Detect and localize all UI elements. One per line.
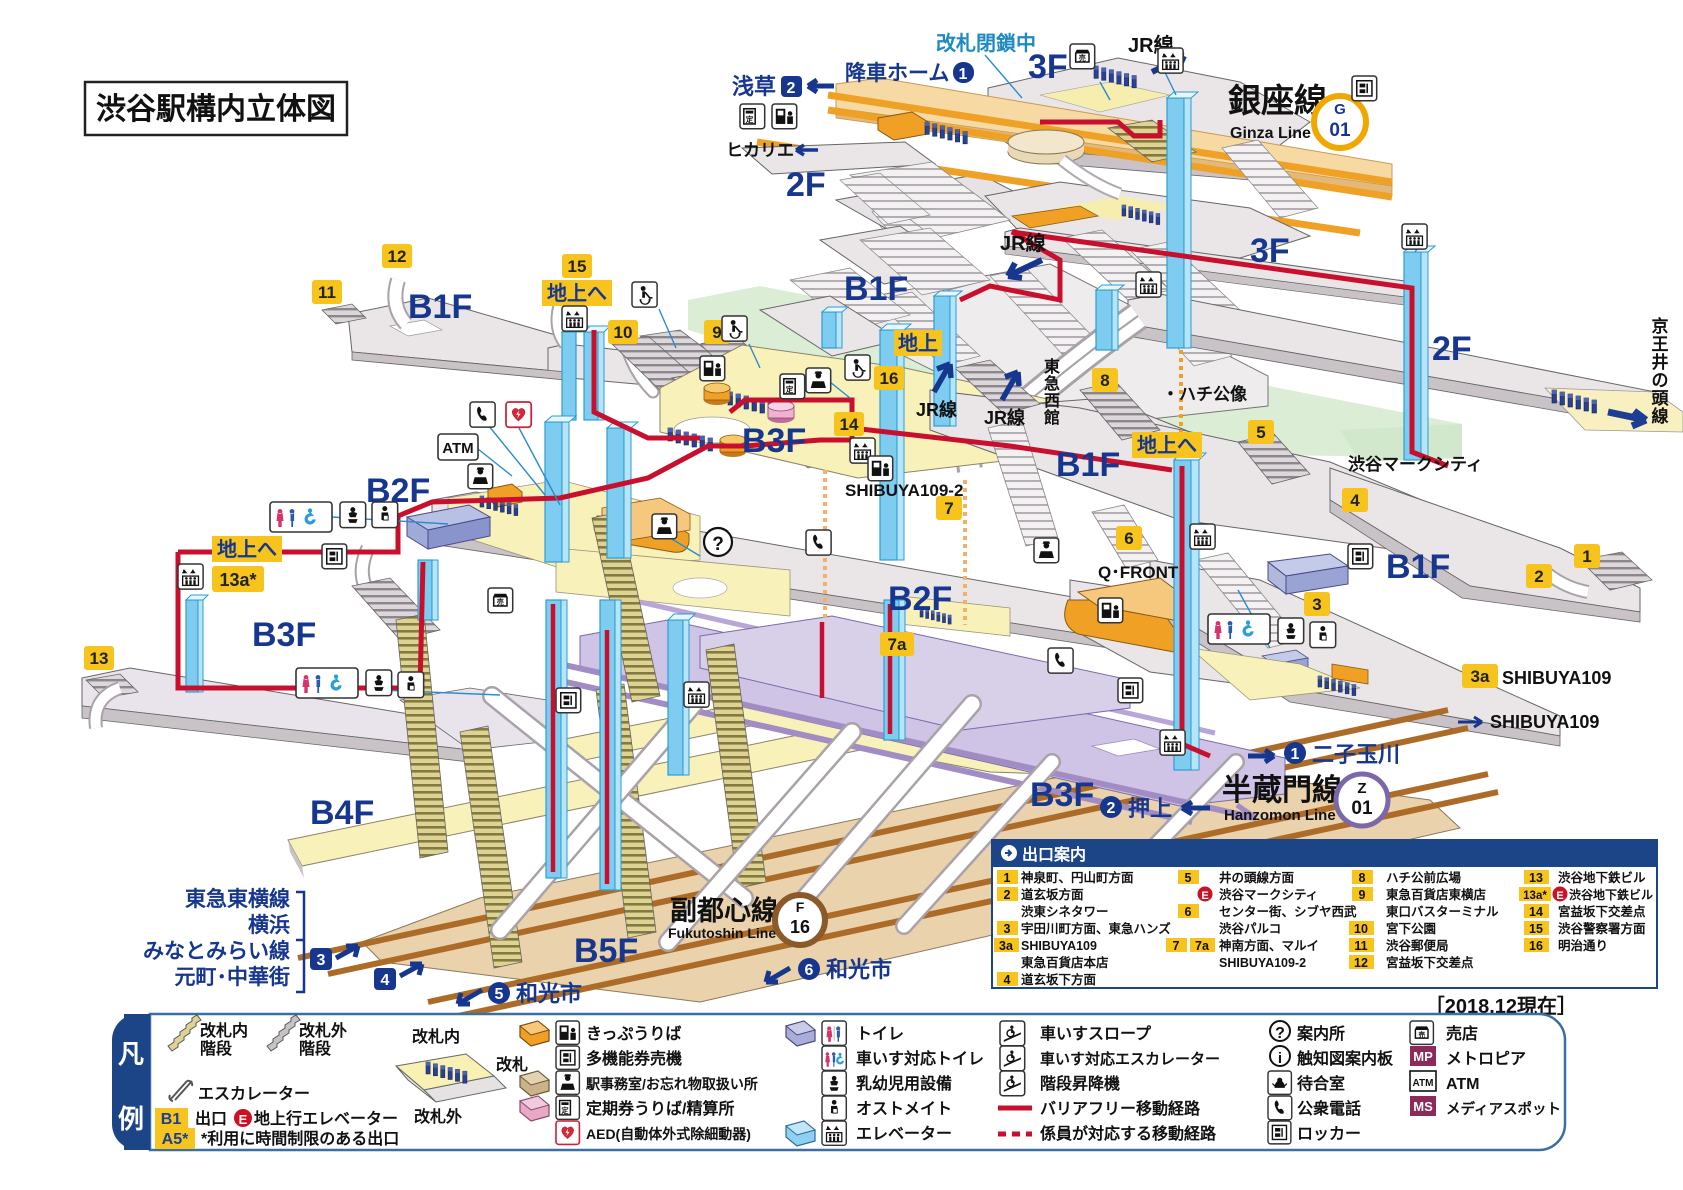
svg-text:i: i: [1278, 1050, 1282, 1067]
svg-text:01: 01: [1351, 798, 1373, 819]
svg-text:トイレ: トイレ: [856, 1026, 904, 1043]
svg-text:3: 3: [317, 952, 326, 969]
svg-text:メディアスポット: メディアスポット: [1446, 1100, 1561, 1118]
svg-text:?: ?: [1275, 1025, 1285, 1042]
svg-text:出口案内: 出口案内: [1022, 845, 1086, 864]
svg-text:多機能券売機: 多機能券売機: [586, 1049, 682, 1068]
svg-text:2: 2: [1107, 800, 1116, 817]
svg-text:触知図案内板: 触知図案内板: [1296, 1049, 1394, 1068]
svg-text:13: 13: [90, 649, 109, 668]
svg-text:改札閉鎖中: 改札閉鎖中: [936, 31, 1036, 55]
svg-text:東急百貨店東横店: 東急百貨店東横店: [1386, 887, 1487, 902]
svg-text:16: 16: [790, 917, 810, 937]
svg-text:ATM: ATM: [442, 440, 473, 457]
svg-text:車いす対応エスカレーター: 車いす対応エスカレーター: [1040, 1050, 1220, 1068]
svg-text:地上へ: 地上へ: [217, 538, 277, 561]
svg-text:線: 線: [1652, 406, 1669, 426]
svg-text:地上へ: 地上へ: [547, 282, 607, 305]
svg-text:*利用に時間制限のある出口: *利用に時間制限のある出口: [201, 1129, 399, 1148]
svg-text:宮益坂下交差点: 宮益坂下交差点: [1558, 904, 1646, 919]
svg-text:5: 5: [1185, 871, 1192, 885]
svg-text:京: 京: [1652, 316, 1669, 336]
svg-text:きっぷうりば: きっぷうりば: [586, 1025, 681, 1043]
svg-text:3: 3: [1312, 595, 1321, 614]
svg-text:12: 12: [388, 247, 407, 266]
svg-text:和光市: 和光市: [516, 981, 582, 1006]
svg-text:井の頭線方面: 井の頭線方面: [1219, 870, 1295, 885]
svg-text:銀座線: 銀座線: [1228, 82, 1327, 119]
svg-text:Ginza Line: Ginza Line: [1230, 125, 1311, 142]
svg-text:駅事務室/お忘れ物取扱い所: 駅事務室/お忘れ物取扱い所: [586, 1076, 758, 1092]
svg-text:A5*: A5*: [162, 1131, 189, 1148]
svg-text:6: 6: [805, 962, 814, 979]
svg-text:E: E: [239, 1112, 248, 1127]
svg-text:バリアフリー移動経路: バリアフリー移動経路: [1040, 1099, 1201, 1118]
svg-text:E: E: [1201, 890, 1208, 902]
svg-text:出口: 出口: [195, 1109, 227, 1128]
svg-text:明治通り: 明治通り: [1558, 938, 1608, 953]
svg-text:宇田川町方面、東急ハンズ: 宇田川町方面、東急ハンズ: [1021, 921, 1171, 936]
svg-text:ロッカー: ロッカー: [1297, 1125, 1361, 1143]
svg-text:道玄坂下方面: 道玄坂下方面: [1021, 972, 1097, 987]
svg-text:14: 14: [840, 415, 859, 434]
svg-text:ヒカリエ: ヒカリエ: [726, 141, 794, 160]
svg-text:B2F: B2F: [888, 580, 952, 618]
svg-text:階段: 階段: [299, 1039, 332, 1058]
svg-text:15: 15: [568, 257, 587, 276]
svg-text:押上: 押上: [1128, 796, 1172, 821]
svg-text:定期券うりば/精算所: 定期券うりば/精算所: [585, 1099, 734, 1118]
svg-text:11: 11: [1354, 939, 1367, 953]
svg-text:JR線: JR線: [984, 407, 1025, 428]
svg-text:・ハチ公像: ・ハチ公像: [1162, 385, 1248, 404]
svg-text:1: 1: [1004, 871, 1011, 885]
svg-text:地上: 地上: [898, 332, 938, 355]
svg-text:公衆電話: 公衆電話: [1297, 1099, 1361, 1118]
svg-text:SHIBUYA109-2: SHIBUYA109-2: [1219, 956, 1306, 970]
svg-text:9: 9: [712, 323, 721, 342]
svg-text:Hanzomon Line: Hanzomon Line: [1224, 807, 1336, 824]
svg-text:01: 01: [1329, 120, 1351, 141]
svg-text:1: 1: [1291, 746, 1300, 763]
svg-text:二子玉川: 二子玉川: [1312, 742, 1400, 767]
svg-text:B1F: B1F: [844, 270, 908, 308]
svg-text:15: 15: [1529, 922, 1543, 936]
svg-text:階段昇降機: 階段昇降機: [1040, 1074, 1120, 1093]
svg-text:13a*: 13a*: [1523, 890, 1547, 902]
svg-text:3a: 3a: [1471, 667, 1490, 686]
svg-text:7a: 7a: [1195, 939, 1210, 953]
svg-text:案内所: 案内所: [1296, 1024, 1345, 1043]
svg-text:改札内: 改札内: [412, 1027, 460, 1046]
svg-text:B1F: B1F: [1056, 446, 1120, 484]
svg-text:例: 例: [118, 1104, 144, 1134]
svg-text:1: 1: [1582, 547, 1591, 566]
svg-text:係員が対応する移動経路: 係員が対応する移動経路: [1040, 1124, 1217, 1143]
svg-text:F: F: [796, 899, 805, 915]
svg-text:乳幼児用設備: 乳幼児用設備: [856, 1074, 952, 1093]
svg-text:神泉町、円山町方面: 神泉町、円山町方面: [1021, 870, 1134, 885]
svg-text:車いす対応トイレ: 車いす対応トイレ: [856, 1049, 984, 1068]
svg-text:E: E: [1556, 890, 1563, 902]
svg-text:7: 7: [944, 499, 953, 518]
svg-text:SHIBUYA109: SHIBUYA109: [1021, 939, 1097, 953]
svg-text:7: 7: [1173, 939, 1180, 953]
svg-text:和光市: 和光市: [826, 957, 892, 982]
svg-text:SHIBUYA109: SHIBUYA109: [1502, 668, 1611, 688]
svg-text:5: 5: [1256, 423, 1265, 442]
svg-text:渋東シネタワー: 渋東シネタワー: [1021, 904, 1109, 919]
svg-text:エレベーター: エレベーター: [856, 1125, 952, 1143]
svg-text:副都心線: 副都心線: [670, 895, 778, 926]
svg-text:降車ホーム: 降車ホーム: [845, 61, 949, 85]
svg-text:道玄坂方面: 道玄坂方面: [1021, 887, 1084, 902]
svg-text:13: 13: [1529, 871, 1543, 885]
svg-text:12: 12: [1354, 956, 1368, 970]
svg-text:?: ?: [712, 534, 724, 555]
svg-text:7a: 7a: [888, 635, 907, 654]
svg-text:10: 10: [614, 323, 633, 342]
svg-text:半蔵門線: 半蔵門線: [1222, 773, 1342, 807]
svg-text:ハチ公前広場: ハチ公前広場: [1386, 870, 1462, 885]
svg-text:階段: 階段: [200, 1039, 233, 1058]
svg-text:B1: B1: [161, 1111, 182, 1128]
svg-text:3F: 3F: [1250, 232, 1290, 270]
svg-text:メトロピア: メトロピア: [1446, 1050, 1526, 1068]
svg-text:JR線: JR線: [916, 399, 957, 420]
svg-text:王: 王: [1652, 335, 1669, 354]
svg-text:凡: 凡: [118, 1039, 144, 1069]
svg-text:16: 16: [880, 369, 899, 388]
svg-text:B4F: B4F: [310, 794, 374, 832]
svg-text:元町･中華街: 元町･中華街: [175, 965, 291, 989]
svg-text:西: 西: [1044, 392, 1060, 410]
svg-text:1: 1: [959, 66, 968, 83]
svg-text:B5F: B5F: [574, 932, 638, 970]
svg-text:B3F: B3F: [742, 422, 806, 460]
svg-text:2: 2: [1534, 567, 1543, 586]
svg-text:B1F: B1F: [408, 288, 472, 326]
svg-text:G: G: [1334, 101, 1346, 118]
svg-text:改札: 改札: [496, 1055, 528, 1074]
svg-text:地上へ: 地上へ: [1137, 434, 1197, 457]
svg-text:14: 14: [1529, 905, 1543, 919]
svg-text:東急東横線: 東急東横線: [185, 887, 290, 911]
svg-text:神南方面、マルイ: 神南方面、マルイ: [1219, 938, 1319, 953]
svg-text:11: 11: [318, 283, 336, 302]
svg-text:渋谷マークシティ: 渋谷マークシティ: [1219, 887, 1318, 902]
svg-text:改札内: 改札内: [200, 1021, 248, 1040]
svg-text:宮下公園: 宮下公園: [1386, 921, 1436, 936]
svg-text:10: 10: [1354, 922, 1368, 936]
svg-text:エスカレーター: エスカレーター: [198, 1085, 310, 1103]
svg-text:センター街、シブヤ西武: センター街、シブヤ西武: [1219, 904, 1357, 919]
svg-text:MS: MS: [1413, 1099, 1433, 1114]
svg-text:東口バスターミナル: 東口バスターミナル: [1386, 904, 1499, 919]
svg-text:8: 8: [1359, 871, 1366, 885]
svg-text:Q･FRONT: Q･FRONT: [1098, 563, 1179, 582]
svg-text:の: の: [1652, 371, 1669, 390]
svg-text:渋谷警察署方面: 渋谷警察署方面: [1558, 921, 1646, 936]
svg-text:JR線: JR線: [1000, 231, 1046, 255]
svg-text:改札外: 改札外: [299, 1021, 347, 1040]
svg-text:2: 2: [1004, 888, 1011, 902]
svg-text:SHIBUYA109: SHIBUYA109: [1490, 712, 1599, 732]
svg-text:13a*: 13a*: [219, 570, 256, 590]
svg-text:オストメイト: オストメイト: [856, 1100, 952, 1118]
svg-text:東: 東: [1044, 357, 1060, 376]
svg-text:渋谷パルコ: 渋谷パルコ: [1219, 921, 1281, 936]
svg-text:Z: Z: [1357, 780, 1366, 797]
svg-text:16: 16: [1529, 939, 1543, 953]
svg-text:渋谷駅構内立体図: 渋谷駅構内立体図: [96, 92, 336, 126]
svg-text:9: 9: [1359, 888, 1366, 902]
svg-text:車いすスロープ: 車いすスロープ: [1040, 1024, 1152, 1043]
svg-text:5: 5: [495, 986, 504, 1003]
svg-text:2: 2: [787, 80, 796, 97]
svg-text:館: 館: [1044, 408, 1060, 427]
svg-text:Fukutoshin Line: Fukutoshin Line: [668, 925, 776, 941]
svg-text:ATM: ATM: [1413, 1078, 1434, 1089]
svg-text:横浜: 横浜: [248, 914, 290, 937]
svg-text:頭: 頭: [1652, 389, 1670, 408]
svg-text:B1F: B1F: [1386, 548, 1450, 586]
svg-text:渋谷地下鉄ビル: 渋谷地下鉄ビル: [1569, 887, 1653, 902]
svg-text:待合室: 待合室: [1297, 1074, 1345, 1093]
svg-text:急: 急: [1044, 374, 1060, 393]
svg-text:売店: 売店: [1446, 1024, 1478, 1043]
svg-text:改札外: 改札外: [414, 1107, 462, 1126]
svg-text:4: 4: [381, 972, 390, 989]
svg-text:8: 8: [1100, 371, 1109, 390]
svg-text:みなとみらい線: みなとみらい線: [143, 939, 290, 963]
svg-text:宮益坂下交差点: 宮益坂下交差点: [1386, 955, 1474, 970]
svg-text:2F: 2F: [1432, 330, 1472, 368]
svg-text:6: 6: [1124, 529, 1133, 548]
svg-text:浅草: 浅草: [732, 74, 776, 99]
svg-text:AED(自動体外式除細動器): AED(自動体外式除細動器): [586, 1126, 751, 1142]
svg-text:ATM: ATM: [1446, 1076, 1479, 1093]
svg-text:東急百貨店本店: 東急百貨店本店: [1021, 955, 1109, 970]
svg-text:B3F: B3F: [252, 616, 316, 654]
svg-text:MP: MP: [1413, 1049, 1433, 1064]
svg-text:3: 3: [1004, 922, 1011, 936]
svg-text:3a: 3a: [999, 939, 1014, 953]
svg-text:井: 井: [1652, 352, 1669, 372]
svg-text:渋谷郵便局: 渋谷郵便局: [1386, 938, 1449, 953]
svg-text:渋谷マークシティ: 渋谷マークシティ: [1348, 454, 1483, 474]
svg-text:渋谷地下鉄ビル: 渋谷地下鉄ビル: [1558, 870, 1646, 885]
svg-text:地上行エレベーター: 地上行エレベーター: [254, 1109, 398, 1128]
svg-text:6: 6: [1185, 905, 1192, 919]
svg-text:2F: 2F: [786, 166, 826, 204]
svg-text:4: 4: [1350, 491, 1360, 510]
svg-text:4: 4: [1004, 973, 1011, 987]
svg-text:B3F: B3F: [1030, 776, 1094, 814]
